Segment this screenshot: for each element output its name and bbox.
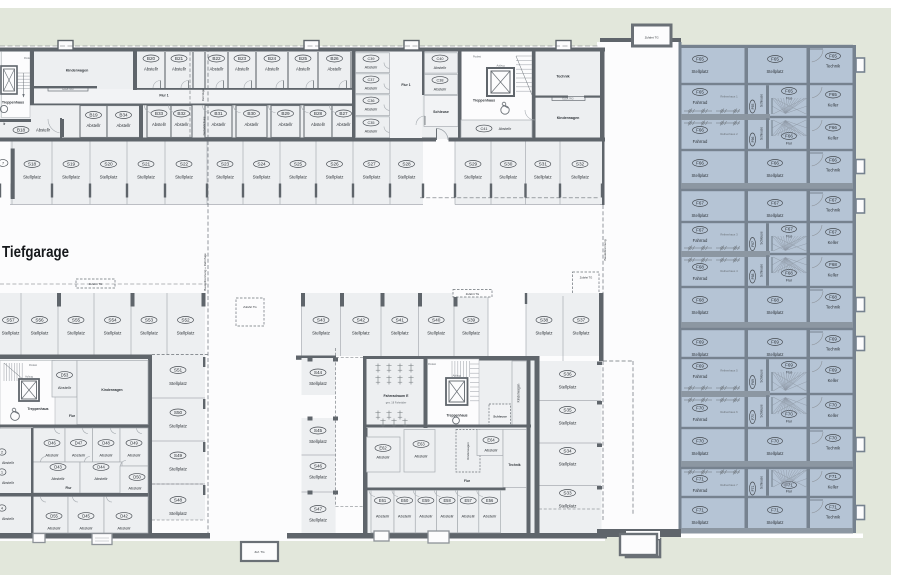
svg-text:B29: B29	[281, 111, 290, 116]
svg-text:Abstellr: Abstellr	[499, 127, 512, 131]
svg-text:S55: S55	[72, 317, 81, 322]
svg-text:1: 1	[1, 470, 3, 474]
svg-text:F67: F67	[829, 229, 837, 234]
svg-text:S51: S51	[174, 367, 183, 372]
svg-text:S22: S22	[180, 161, 189, 166]
svg-text:F70: F70	[696, 405, 704, 410]
svg-text:S54: S54	[108, 317, 117, 322]
svg-text:C40: C40	[437, 57, 444, 61]
svg-text:Abstellr: Abstellr	[296, 67, 311, 72]
svg-text:S52: S52	[181, 317, 190, 322]
svg-text:B24: B24	[268, 56, 277, 61]
svg-text:Aufzug: Aufzug	[25, 376, 33, 379]
svg-text:Fahrrad: Fahrrad	[693, 488, 708, 493]
svg-text:Technik: Technik	[556, 75, 569, 79]
svg-text:Stellplatz: Stellplatz	[363, 175, 381, 180]
svg-text:F67: F67	[751, 241, 755, 247]
svg-text:F68: F68	[829, 294, 837, 299]
svg-text:Schleuse: Schleuse	[760, 476, 764, 489]
svg-text:E56: E56	[486, 498, 494, 503]
svg-text:Abstellr: Abstellr	[152, 122, 167, 127]
svg-text:S31: S31	[539, 161, 548, 166]
svg-text:Abstellr: Abstellr	[128, 486, 142, 491]
svg-text:Reihenhaus 4: Reihenhaus 4	[720, 269, 738, 273]
svg-text:Abstellr: Abstellr	[94, 476, 108, 481]
svg-text:S44: S44	[314, 370, 323, 375]
svg-text:Stellplatz: Stellplatz	[177, 331, 195, 336]
svg-text:S28: S28	[402, 161, 411, 166]
svg-text:F68: F68	[771, 297, 779, 302]
svg-text:Abstellr: Abstellr	[127, 453, 141, 458]
svg-text:Zufahrt TG: Zufahrt TG	[466, 292, 479, 296]
svg-text:Reihenhaus 2: Reihenhaus 2	[720, 132, 738, 136]
svg-text:Schleuse: Schleuse	[760, 231, 764, 244]
svg-text:Stellplatz: Stellplatz	[692, 520, 709, 525]
svg-text:B19: B19	[89, 112, 98, 117]
svg-text:Abstellr: Abstellr	[365, 87, 378, 91]
svg-text:S38: S38	[540, 317, 549, 322]
svg-text:Treppenhaus: Treppenhaus	[2, 101, 24, 105]
svg-text:Fahrrad: Fahrrad	[693, 374, 708, 379]
svg-text:Abstellr: Abstellr	[99, 453, 113, 458]
svg-text:C36: C36	[368, 99, 375, 103]
svg-text:Treppenhaus: Treppenhaus	[473, 99, 495, 103]
svg-text:Stellplatz: Stellplatz	[767, 213, 784, 218]
svg-text:Abstellr: Abstellr	[235, 67, 250, 72]
svg-text:B26: B26	[330, 56, 339, 61]
svg-text:Flur 1: Flur 1	[401, 83, 410, 87]
svg-text:Kinderwagen: Kinderwagen	[101, 388, 122, 392]
svg-text:D53: D53	[61, 372, 69, 377]
svg-text:S25: S25	[294, 161, 303, 166]
svg-text:S41: S41	[396, 317, 405, 322]
svg-text:Stellplatz: Stellplatz	[169, 511, 187, 516]
svg-text:F70: F70	[751, 414, 755, 420]
svg-text:Abstellr: Abstellr	[365, 108, 378, 112]
svg-text:D45: D45	[82, 513, 90, 518]
svg-text:Abstellr: Abstellr	[376, 455, 390, 460]
svg-text:F65: F65	[696, 56, 704, 61]
svg-text:F71: F71	[696, 476, 704, 481]
svg-text:F70: F70	[771, 438, 779, 443]
svg-text:D47: D47	[75, 440, 83, 445]
svg-text:Stellplatz: Stellplatz	[140, 331, 158, 336]
svg-text:E62: E62	[379, 445, 387, 450]
svg-text:C41: C41	[481, 127, 488, 131]
svg-text:S47: S47	[314, 506, 323, 511]
svg-text:Zufahrt TG: Zufahrt TG	[645, 36, 660, 40]
svg-text:Flur: Flur	[786, 142, 793, 146]
svg-text:F69: F69	[751, 379, 755, 385]
svg-text:Kinderwagen: Kinderwagen	[466, 442, 470, 460]
svg-text:Abstellr: Abstellr	[2, 481, 15, 485]
svg-text:F67: F67	[771, 200, 779, 205]
svg-text:C38: C38	[437, 78, 444, 82]
svg-text:Technik: Technik	[826, 208, 841, 213]
svg-text:S21: S21	[142, 161, 151, 166]
svg-text:Abstellr: Abstellr	[2, 517, 15, 521]
svg-text:Stellplatz: Stellplatz	[536, 331, 553, 336]
svg-text:Stellplatz: Stellplatz	[559, 385, 577, 390]
svg-text:S48: S48	[174, 497, 183, 502]
svg-text:ELEKTRO: ELEKTRO	[562, 98, 573, 101]
svg-text:Abstellr: Abstellr	[87, 123, 102, 128]
svg-text:Stellplatz: Stellplatz	[391, 331, 409, 336]
svg-text:Stellplatz: Stellplatz	[559, 462, 577, 467]
svg-text:Abstellr: Abstellr	[45, 453, 59, 458]
svg-text:Technik: Technik	[826, 305, 841, 310]
svg-text:Aufzug: Aufzug	[496, 64, 505, 68]
svg-text:Stellplatz: Stellplatz	[692, 352, 709, 357]
svg-text:Keller: Keller	[828, 103, 839, 108]
svg-text:Keller: Keller	[828, 413, 839, 418]
svg-text:E60: E60	[401, 498, 409, 503]
svg-text:S36: S36	[563, 371, 572, 376]
svg-text:Keller: Keller	[828, 136, 839, 141]
svg-text:S46: S46	[314, 463, 323, 468]
svg-text:S33: S33	[563, 490, 572, 495]
svg-text:Abstellr: Abstellr	[376, 514, 390, 519]
svg-text:Podest: Podest	[29, 363, 37, 367]
svg-text:Flur: Flur	[464, 479, 471, 483]
svg-text:Abstellr: Abstellr	[279, 122, 294, 127]
svg-text:F71: F71	[829, 504, 837, 509]
svg-text:Stellplatz: Stellplatz	[137, 175, 155, 180]
svg-text:F69: F69	[696, 363, 704, 368]
svg-text:Flur: Flur	[786, 279, 793, 283]
svg-text:B21: B21	[175, 56, 184, 61]
svg-text:D50: D50	[133, 474, 141, 479]
svg-text:F70: F70	[829, 402, 837, 407]
svg-text:Flur: Flur	[69, 414, 76, 418]
svg-text:B20: B20	[147, 56, 156, 61]
svg-text:Schleuse: Schleuse	[433, 110, 449, 114]
svg-text:S34: S34	[563, 448, 572, 453]
svg-text:Keller: Keller	[828, 240, 839, 245]
svg-text:Schleuse: Schleuse	[760, 404, 764, 417]
svg-text:F69: F69	[785, 362, 793, 367]
svg-text:Technik: Technik	[826, 347, 841, 352]
svg-text:Stellplatz: Stellplatz	[499, 175, 517, 180]
svg-text:Fahrrad: Fahrrad	[693, 100, 708, 105]
svg-text:Flur: Flur	[786, 490, 793, 494]
svg-text:Stellplatz: Stellplatz	[534, 175, 552, 180]
svg-text:B33: B33	[155, 111, 164, 116]
svg-text:Stellplatz: Stellplatz	[309, 475, 327, 480]
svg-text:F71: F71	[771, 507, 779, 512]
svg-text:B31: B31	[214, 111, 223, 116]
svg-text:Technik: Technik	[826, 515, 841, 520]
svg-text:F67: F67	[829, 197, 837, 202]
svg-text:Reihenhaus 5: Reihenhaus 5	[720, 369, 738, 373]
svg-text:4: 4	[1, 506, 3, 510]
svg-text:S53: S53	[145, 317, 154, 322]
svg-text:B23: B23	[238, 56, 247, 61]
svg-text:Reihenhaus 1: Reihenhaus 1	[720, 95, 738, 99]
svg-text:Reihenhaus 7: Reihenhaus 7	[720, 483, 738, 487]
svg-text:Stellplatz: Stellplatz	[559, 421, 577, 426]
svg-text:S50: S50	[174, 410, 183, 415]
svg-text:Abstellr: Abstellr	[484, 448, 498, 453]
svg-text:B27: B27	[339, 111, 348, 116]
svg-text:Stellplatz: Stellplatz	[169, 381, 187, 386]
svg-text:B32: B32	[177, 111, 186, 116]
svg-text:C39: C39	[368, 57, 375, 61]
svg-text:Abstellr: Abstellr	[212, 122, 227, 127]
svg-text:Reihenhaus 6: Reihenhaus 6	[720, 410, 738, 414]
svg-text:Keller: Keller	[828, 273, 839, 278]
svg-text:Stellplatz: Stellplatz	[767, 352, 784, 357]
svg-text:Stellplatz: Stellplatz	[767, 69, 784, 74]
svg-text:D48: D48	[102, 440, 110, 445]
svg-text:Stellplatz: Stellplatz	[169, 467, 187, 472]
svg-text:Flur: Flur	[786, 420, 793, 424]
svg-text:F68: F68	[751, 273, 755, 279]
svg-text:F67: F67	[696, 200, 704, 205]
svg-text:F65: F65	[751, 103, 755, 109]
svg-text:Stellplatz: Stellplatz	[352, 331, 370, 336]
svg-text:Fahrradraum E: Fahrradraum E	[384, 394, 410, 398]
svg-text:Zufahrt TG: Zufahrt TG	[243, 305, 256, 309]
svg-text:2: 2	[1, 450, 3, 454]
svg-text:E64: E64	[487, 437, 495, 442]
svg-text:D44: D44	[97, 464, 105, 469]
svg-text:Technik: Technik	[826, 446, 841, 451]
svg-text:Keller: Keller	[828, 485, 839, 490]
svg-text:S29: S29	[469, 161, 478, 166]
svg-text:B25: B25	[299, 56, 308, 61]
svg-text:Stellplatz: Stellplatz	[62, 175, 80, 180]
svg-text:S56: S56	[35, 317, 44, 322]
svg-text:F66: F66	[829, 157, 837, 162]
svg-text:Stellplatz: Stellplatz	[2, 331, 20, 336]
svg-text:F65: F65	[771, 56, 779, 61]
svg-text:F66: F66	[771, 160, 779, 165]
svg-text:Dachabdichtung: Dachabdichtung	[202, 116, 206, 135]
svg-text:E59: E59	[422, 498, 430, 503]
svg-text:Stellplatz: Stellplatz	[31, 331, 49, 336]
svg-text:Stellplatz: Stellplatz	[289, 175, 307, 180]
svg-text:Schleuse: Schleuse	[760, 264, 764, 277]
svg-text:S37: S37	[577, 317, 586, 322]
svg-text:Stellplatz: Stellplatz	[692, 451, 709, 456]
svg-text:Zufahrt TG: Zufahrt TG	[580, 276, 593, 280]
svg-text:Abstellr: Abstellr	[419, 514, 433, 519]
svg-text:Abstellr: Abstellr	[434, 88, 447, 92]
svg-text:F68: F68	[696, 264, 704, 269]
svg-text:Abstellr: Abstellr	[462, 514, 476, 519]
svg-text:Zuf. TG: Zuf. TG	[254, 550, 265, 554]
svg-text:Abstellr: Abstellr	[117, 123, 132, 128]
svg-text:B22: B22	[212, 56, 221, 61]
svg-text:Reihenhaus 3: Reihenhaus 3	[720, 233, 738, 237]
svg-text:Schleuse: Schleuse	[760, 94, 764, 107]
svg-text:Kinderwagen: Kinderwagen	[66, 69, 89, 73]
svg-text:Stellplatz: Stellplatz	[692, 69, 709, 74]
svg-text:F65: F65	[829, 92, 837, 97]
svg-text:S40: S40	[432, 317, 441, 322]
svg-text:F67: F67	[785, 226, 793, 231]
svg-text:S20: S20	[104, 161, 113, 166]
svg-text:F70: F70	[696, 438, 704, 443]
svg-text:Abstellr: Abstellr	[434, 66, 447, 70]
svg-text:Stellplatz: Stellplatz	[312, 331, 330, 336]
svg-text:S24: S24	[257, 161, 266, 166]
svg-text:Abstellr: Abstellr	[58, 385, 72, 390]
svg-text:F65: F65	[829, 53, 837, 58]
svg-text:B18: B18	[17, 127, 26, 132]
svg-text:E57: E57	[465, 498, 473, 503]
svg-text:Abstellr: Abstellr	[51, 476, 65, 481]
svg-text:Flur: Flur	[65, 486, 72, 490]
svg-text:Fahrrad: Fahrrad	[693, 417, 708, 422]
svg-text:Abstellr: Abstellr	[311, 122, 326, 127]
svg-text:D46: D46	[48, 440, 56, 445]
svg-text:S23: S23	[221, 161, 230, 166]
svg-text:Stellplatz: Stellplatz	[767, 520, 784, 525]
svg-text:F67: F67	[696, 227, 704, 232]
svg-text:Stellplatz: Stellplatz	[398, 175, 416, 180]
svg-text:F66: F66	[696, 160, 704, 165]
svg-text:Stellplatz: Stellplatz	[104, 331, 122, 336]
svg-text:Abstellr: Abstellr	[365, 66, 378, 70]
svg-text:Podest: Podest	[428, 362, 436, 366]
svg-text:Abstellr: Abstellr	[36, 128, 51, 133]
svg-text:S39: S39	[467, 317, 476, 322]
svg-text:Aufzug: Aufzug	[453, 375, 461, 378]
svg-text:F71: F71	[829, 474, 837, 479]
svg-text:Stellplatz: Stellplatz	[309, 439, 327, 444]
svg-text:Stellplatz: Stellplatz	[559, 504, 577, 509]
svg-text:Abstellr: Abstellr	[172, 67, 187, 72]
svg-text:Schleuse: Schleuse	[493, 415, 507, 419]
svg-text:F69: F69	[771, 339, 779, 344]
svg-text:Stellplatz: Stellplatz	[692, 173, 709, 178]
svg-text:Abstellr: Abstellr	[414, 454, 428, 459]
svg-text:Keller: Keller	[828, 378, 839, 383]
svg-text:S42: S42	[357, 317, 366, 322]
svg-text:Technik: Technik	[826, 64, 841, 69]
svg-text:Dehnfuge: Dehnfuge	[201, 88, 205, 101]
svg-text:Stellplatz: Stellplatz	[216, 175, 234, 180]
svg-text:Stellplatz: Stellplatz	[309, 381, 327, 386]
svg-text:ges. 18 Fahrräder: ges. 18 Fahrräder	[386, 401, 407, 405]
svg-text:Fahrrad: Fahrrad	[693, 238, 708, 243]
svg-text:Stellplatz: Stellplatz	[309, 518, 327, 523]
svg-text:Stellplatz: Stellplatz	[767, 451, 784, 456]
svg-text:Abstellr: Abstellr	[79, 526, 93, 531]
svg-text:F66: F66	[829, 125, 837, 130]
svg-text:Schleuse: Schleuse	[760, 369, 764, 382]
svg-text:Stellplatz: Stellplatz	[767, 173, 784, 178]
svg-text:Stellplatz: Stellplatz	[23, 175, 41, 180]
svg-text:B30: B30	[247, 111, 256, 116]
svg-text:S27: S27	[367, 161, 376, 166]
svg-text:Stellplatz: Stellplatz	[571, 175, 589, 180]
svg-text:Abstellr: Abstellr	[117, 526, 131, 531]
svg-text:Treppenhaus: Treppenhaus	[27, 407, 48, 411]
svg-text:E61: E61	[379, 498, 387, 503]
svg-text:Stellplatz: Stellplatz	[464, 175, 482, 180]
svg-text:Technik: Technik	[826, 168, 841, 173]
svg-text:B28: B28	[314, 111, 323, 116]
svg-text:Stellplatz: Stellplatz	[67, 331, 85, 336]
svg-text:S18: S18	[28, 161, 37, 166]
svg-text:Abstellr: Abstellr	[265, 67, 280, 72]
svg-text:Abstellr: Abstellr	[2, 461, 15, 465]
svg-text:Stellplatz: Stellplatz	[767, 310, 784, 315]
svg-text:S19: S19	[67, 161, 76, 166]
svg-text:F66: F66	[751, 136, 755, 142]
svg-text:Abstellr: Abstellr	[398, 514, 412, 519]
svg-text:ELEKTRO: ELEKTRO	[62, 88, 73, 91]
svg-text:S35: S35	[563, 407, 572, 412]
svg-text:Abstellr: Abstellr	[175, 122, 190, 127]
svg-text:F71: F71	[751, 485, 755, 491]
svg-text:F69: F69	[696, 339, 704, 344]
svg-text:F68: F68	[696, 297, 704, 302]
svg-text:S30: S30	[504, 161, 513, 166]
svg-text:F65: F65	[696, 89, 704, 94]
svg-text:D49: D49	[130, 440, 138, 445]
svg-text:Abstellr: Abstellr	[365, 130, 378, 134]
svg-text:Abstellr: Abstellr	[210, 67, 225, 72]
svg-text:C37: C37	[368, 78, 375, 82]
svg-text:Kinderwagen: Kinderwagen	[557, 116, 580, 120]
svg-text:Stellplatz: Stellplatz	[692, 213, 709, 218]
svg-text:F70: F70	[829, 435, 837, 440]
svg-text:Kinderwagen: Kinderwagen	[517, 383, 521, 402]
svg-text:F69: F69	[829, 336, 837, 341]
svg-text:Stellplatz: Stellplatz	[692, 310, 709, 315]
svg-text:F71: F71	[696, 507, 704, 512]
svg-text:Stellplatz: Stellplatz	[427, 331, 445, 336]
svg-text:Abstellr: Abstellr	[328, 67, 343, 72]
svg-text:Abstellr: Abstellr	[440, 514, 454, 519]
svg-text:S49: S49	[174, 453, 183, 458]
svg-text:Bauteiltrennung: Bauteiltrennung	[603, 239, 607, 260]
svg-text:S26: S26	[330, 161, 339, 166]
svg-text:S45: S45	[314, 428, 323, 433]
svg-text:E58: E58	[443, 498, 451, 503]
svg-text:Abstellr: Abstellr	[144, 67, 159, 72]
svg-text:D42: D42	[120, 513, 128, 518]
svg-text:F66: F66	[696, 127, 704, 132]
svg-text:S57: S57	[6, 317, 15, 322]
svg-text:D43: D43	[54, 464, 62, 469]
svg-text:7: 7	[2, 161, 4, 165]
svg-text:Schleuse: Schleuse	[760, 127, 764, 140]
svg-text:Stellplatz: Stellplatz	[253, 175, 271, 180]
svg-text:Stellplatz: Stellplatz	[100, 175, 118, 180]
svg-text:F69: F69	[829, 367, 837, 372]
svg-text:Stellplatz: Stellplatz	[175, 175, 193, 180]
svg-text:Podest: Podest	[473, 55, 481, 59]
svg-text:S32: S32	[576, 161, 585, 166]
svg-text:D55: D55	[50, 513, 58, 518]
svg-text:Abstellr: Abstellr	[483, 514, 497, 519]
svg-text:F65: F65	[785, 88, 793, 93]
svg-text:S43: S43	[317, 317, 326, 322]
svg-text:B34: B34	[119, 112, 128, 117]
svg-text:Tiefgarage: Tiefgarage	[2, 244, 69, 261]
svg-text:Stellplatz: Stellplatz	[169, 424, 187, 429]
svg-text:Abstellr: Abstellr	[72, 453, 86, 458]
svg-text:Stellplatz: Stellplatz	[326, 175, 344, 180]
svg-text:Fahrrad: Fahrrad	[693, 139, 708, 144]
svg-text:C35: C35	[368, 121, 375, 125]
svg-text:Abstellr: Abstellr	[337, 122, 352, 127]
